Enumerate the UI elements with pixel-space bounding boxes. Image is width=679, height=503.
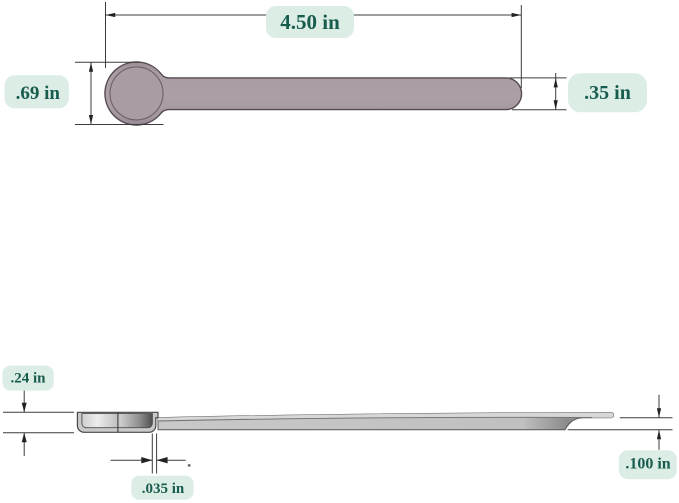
svg-text:4.50 in: 4.50 in: [280, 10, 340, 34]
svg-text:.035 in: .035 in: [142, 481, 185, 497]
svg-text:.69 in: .69 in: [16, 83, 61, 104]
svg-text:.24 in: .24 in: [10, 371, 46, 387]
svg-text:.35 in: .35 in: [584, 82, 631, 104]
svg-text:.100 in: .100 in: [625, 456, 670, 473]
